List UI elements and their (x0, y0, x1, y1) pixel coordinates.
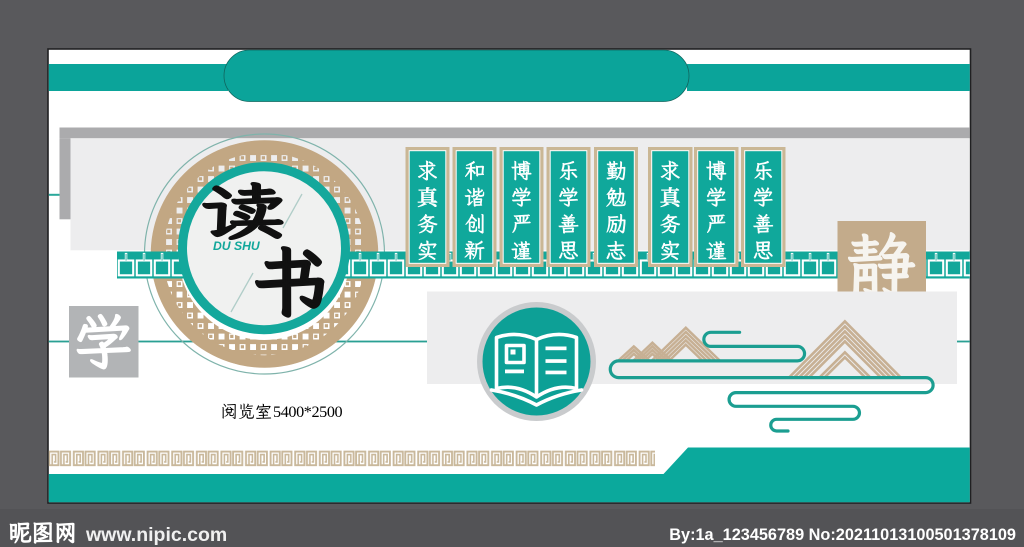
svg-text:5400*2500: 5400*2500 (273, 403, 343, 421)
svg-text:www.nipic.com: www.nipic.com (85, 524, 227, 546)
svg-text:DU SHU: DU SHU (213, 239, 261, 253)
svg-text:By:1a_123456789 No:20211013100: By:1a_123456789 No:20211013100501378109 (669, 526, 1016, 544)
